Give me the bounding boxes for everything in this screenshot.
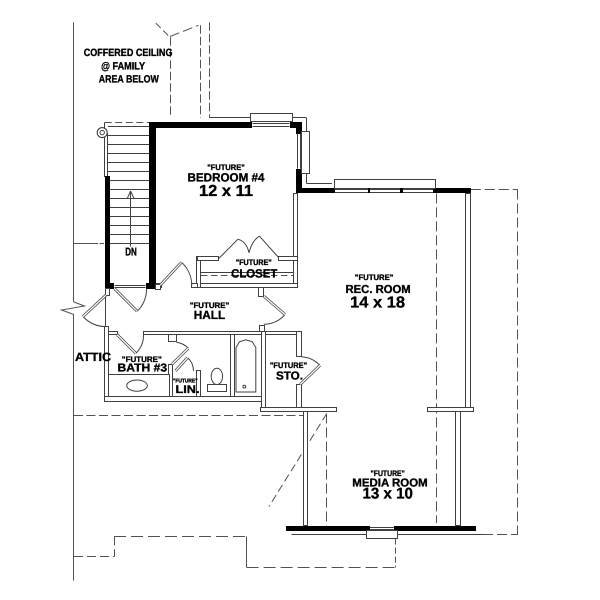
- svg-text:"FUTURE": "FUTURE": [355, 273, 394, 282]
- svg-text:CLOSET: CLOSET: [231, 266, 278, 280]
- svg-text:COFFERED CEILING: COFFERED CEILING: [84, 47, 173, 59]
- svg-text:DN: DN: [125, 246, 137, 258]
- svg-text:ATTIC: ATTIC: [75, 350, 111, 364]
- svg-text:@ FAMILY: @ FAMILY: [101, 61, 145, 73]
- svg-text:14 x 18: 14 x 18: [350, 295, 405, 312]
- svg-text:HALL: HALL: [194, 308, 226, 322]
- svg-text:12 x 11: 12 x 11: [199, 183, 253, 200]
- svg-text:BATH #3: BATH #3: [118, 362, 168, 374]
- svg-text:STO.: STO.: [276, 370, 303, 382]
- svg-text:"FUTURE": "FUTURE": [270, 361, 307, 370]
- svg-text:AREA BELOW: AREA BELOW: [99, 74, 159, 86]
- svg-text:LIN.: LIN.: [176, 384, 200, 396]
- svg-text:13 x 10: 13 x 10: [363, 486, 413, 503]
